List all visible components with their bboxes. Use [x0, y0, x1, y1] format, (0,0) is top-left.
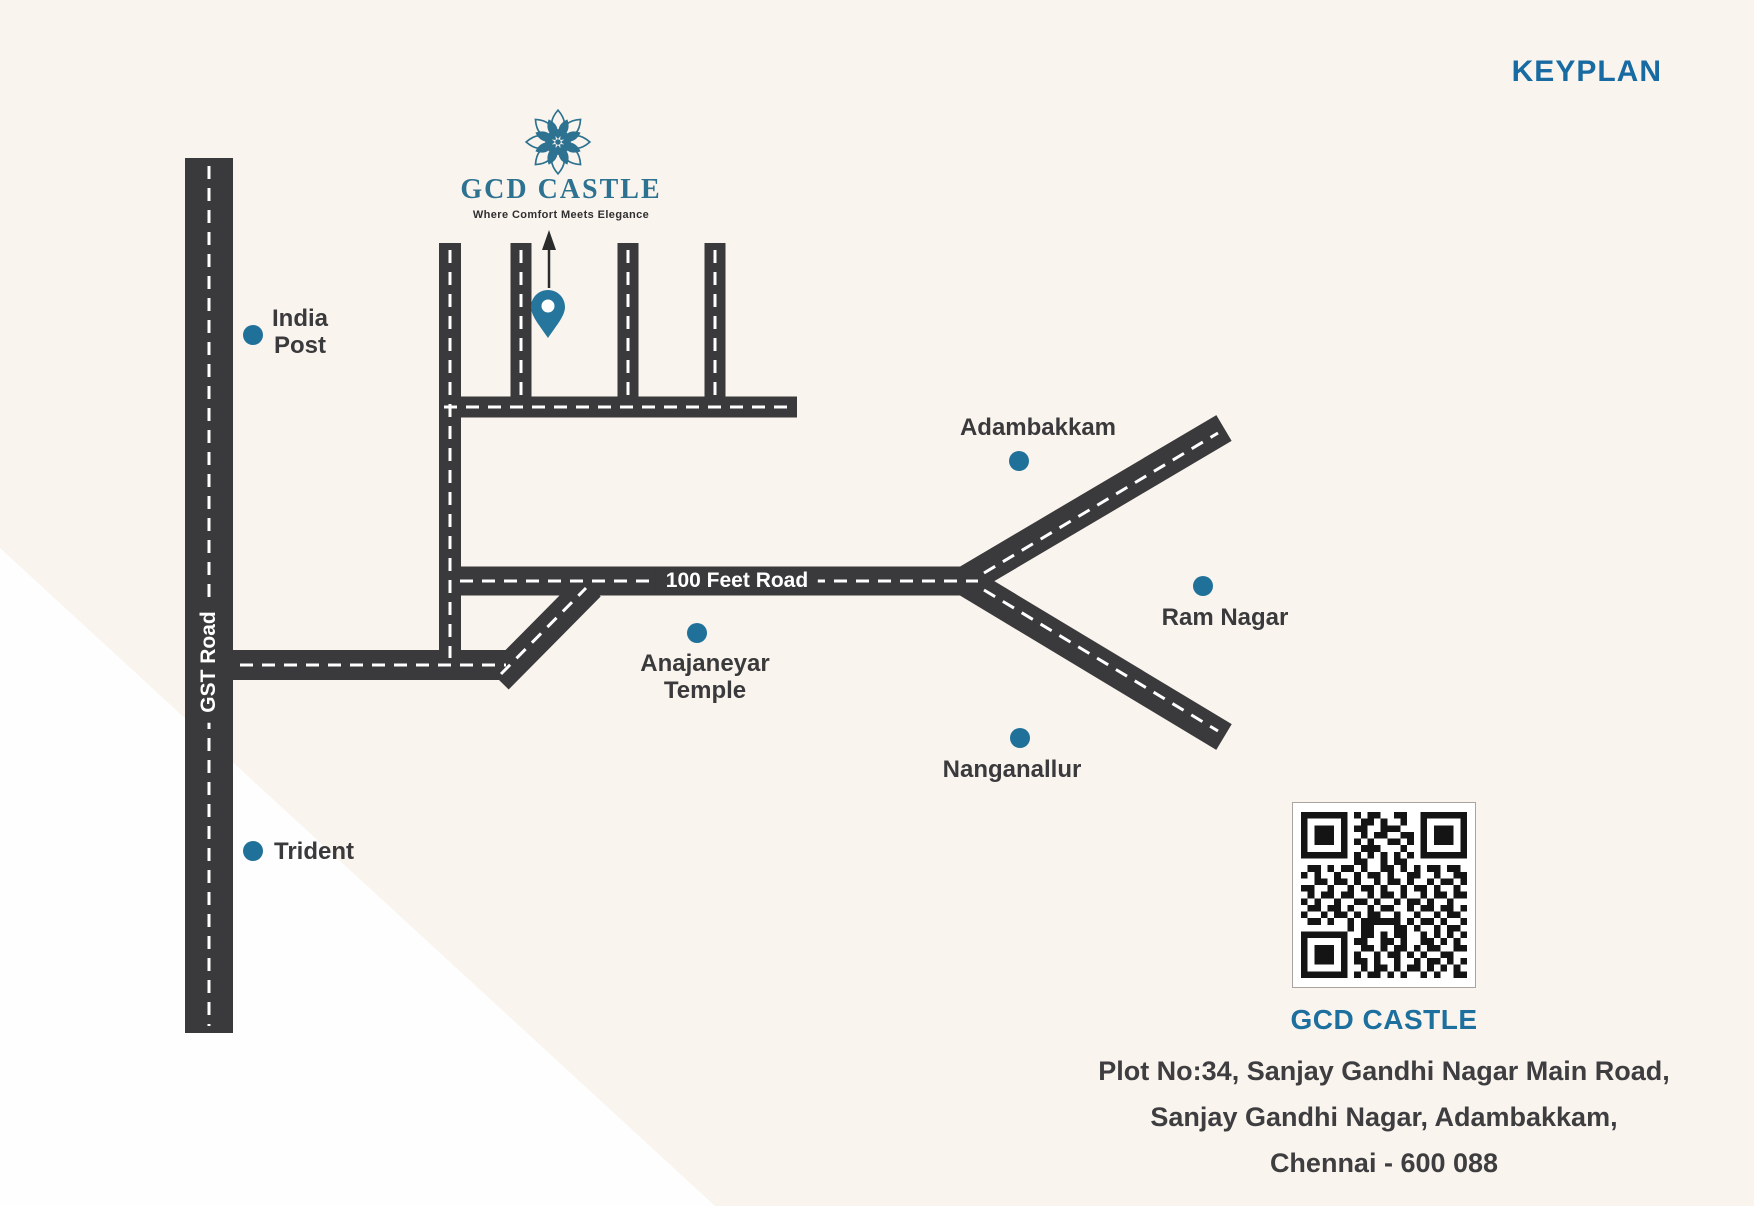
road-label-gst-road: GST Road: [196, 601, 222, 723]
landmark-label-nanganallur: Nanganallur: [892, 756, 1132, 783]
qr-code: [1292, 802, 1476, 988]
qr-code-pattern: [1301, 811, 1467, 979]
landmark-dot-nanganallur: [1010, 728, 1030, 748]
logo-title: GCD CASTLE: [411, 174, 711, 206]
logo-tagline: Where Comfort Meets Elegance: [411, 209, 711, 221]
landmark-dot-trident: [243, 841, 263, 861]
address-line: Sanjay Gandhi Nagar, Adambakkam,: [1054, 1094, 1714, 1140]
address-line: Chennai - 600 088: [1054, 1140, 1714, 1186]
footer-address: Plot No:34, Sanjay Gandhi Nagar Main Roa…: [1054, 1048, 1714, 1186]
flower-logo-icon: [524, 108, 592, 176]
arrow-up-icon: [542, 230, 556, 288]
footer-project-name: GCD CASTLE: [1054, 1004, 1714, 1036]
location-pin-icon: [531, 290, 565, 338]
landmark-label-ram-nagar: Ram Nagar: [1105, 604, 1345, 631]
road-label-100-feet-road: 100 Feet Road: [656, 568, 818, 594]
landmark-label-anajaneyar-temple: Anajaneyar Temple: [585, 650, 825, 704]
keyplan-page: KEYPLAN GCD CASTLE Where Comfort Meets E…: [0, 0, 1754, 1206]
landmark-dot-ram-nagar: [1193, 576, 1213, 596]
page-title: KEYPLAN: [1512, 55, 1662, 89]
landmark-label-india-post: India Post: [230, 305, 370, 359]
landmark-label-trident: Trident: [274, 838, 354, 865]
address-line: Plot No:34, Sanjay Gandhi Nagar Main Roa…: [1054, 1048, 1714, 1094]
landmark-label-adambakkam: Adambakkam: [898, 414, 1178, 441]
roads: [209, 158, 1224, 1033]
landmark-dot-anajaneyar-temple: [687, 623, 707, 643]
road-center-dashes: [209, 166, 1218, 1026]
landmark-dot-adambakkam: [1009, 451, 1029, 471]
